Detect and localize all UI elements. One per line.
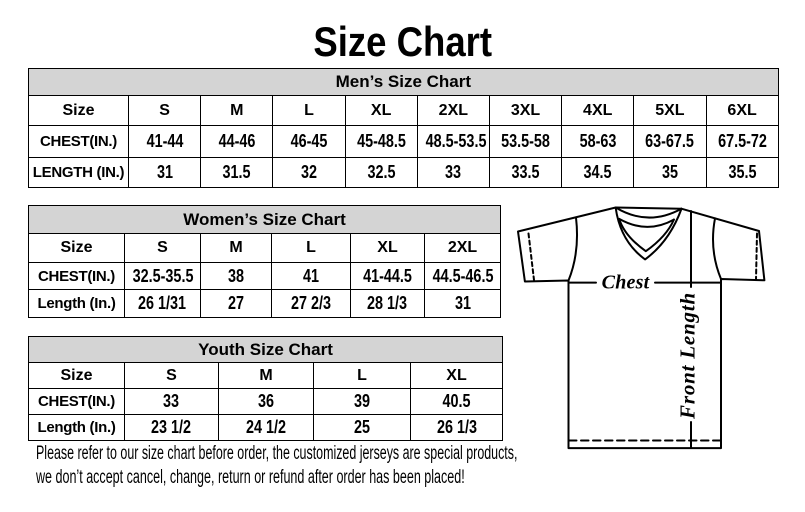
- svg-text:Chest: Chest: [602, 272, 651, 294]
- svg-text:Front Length: Front Length: [676, 292, 700, 420]
